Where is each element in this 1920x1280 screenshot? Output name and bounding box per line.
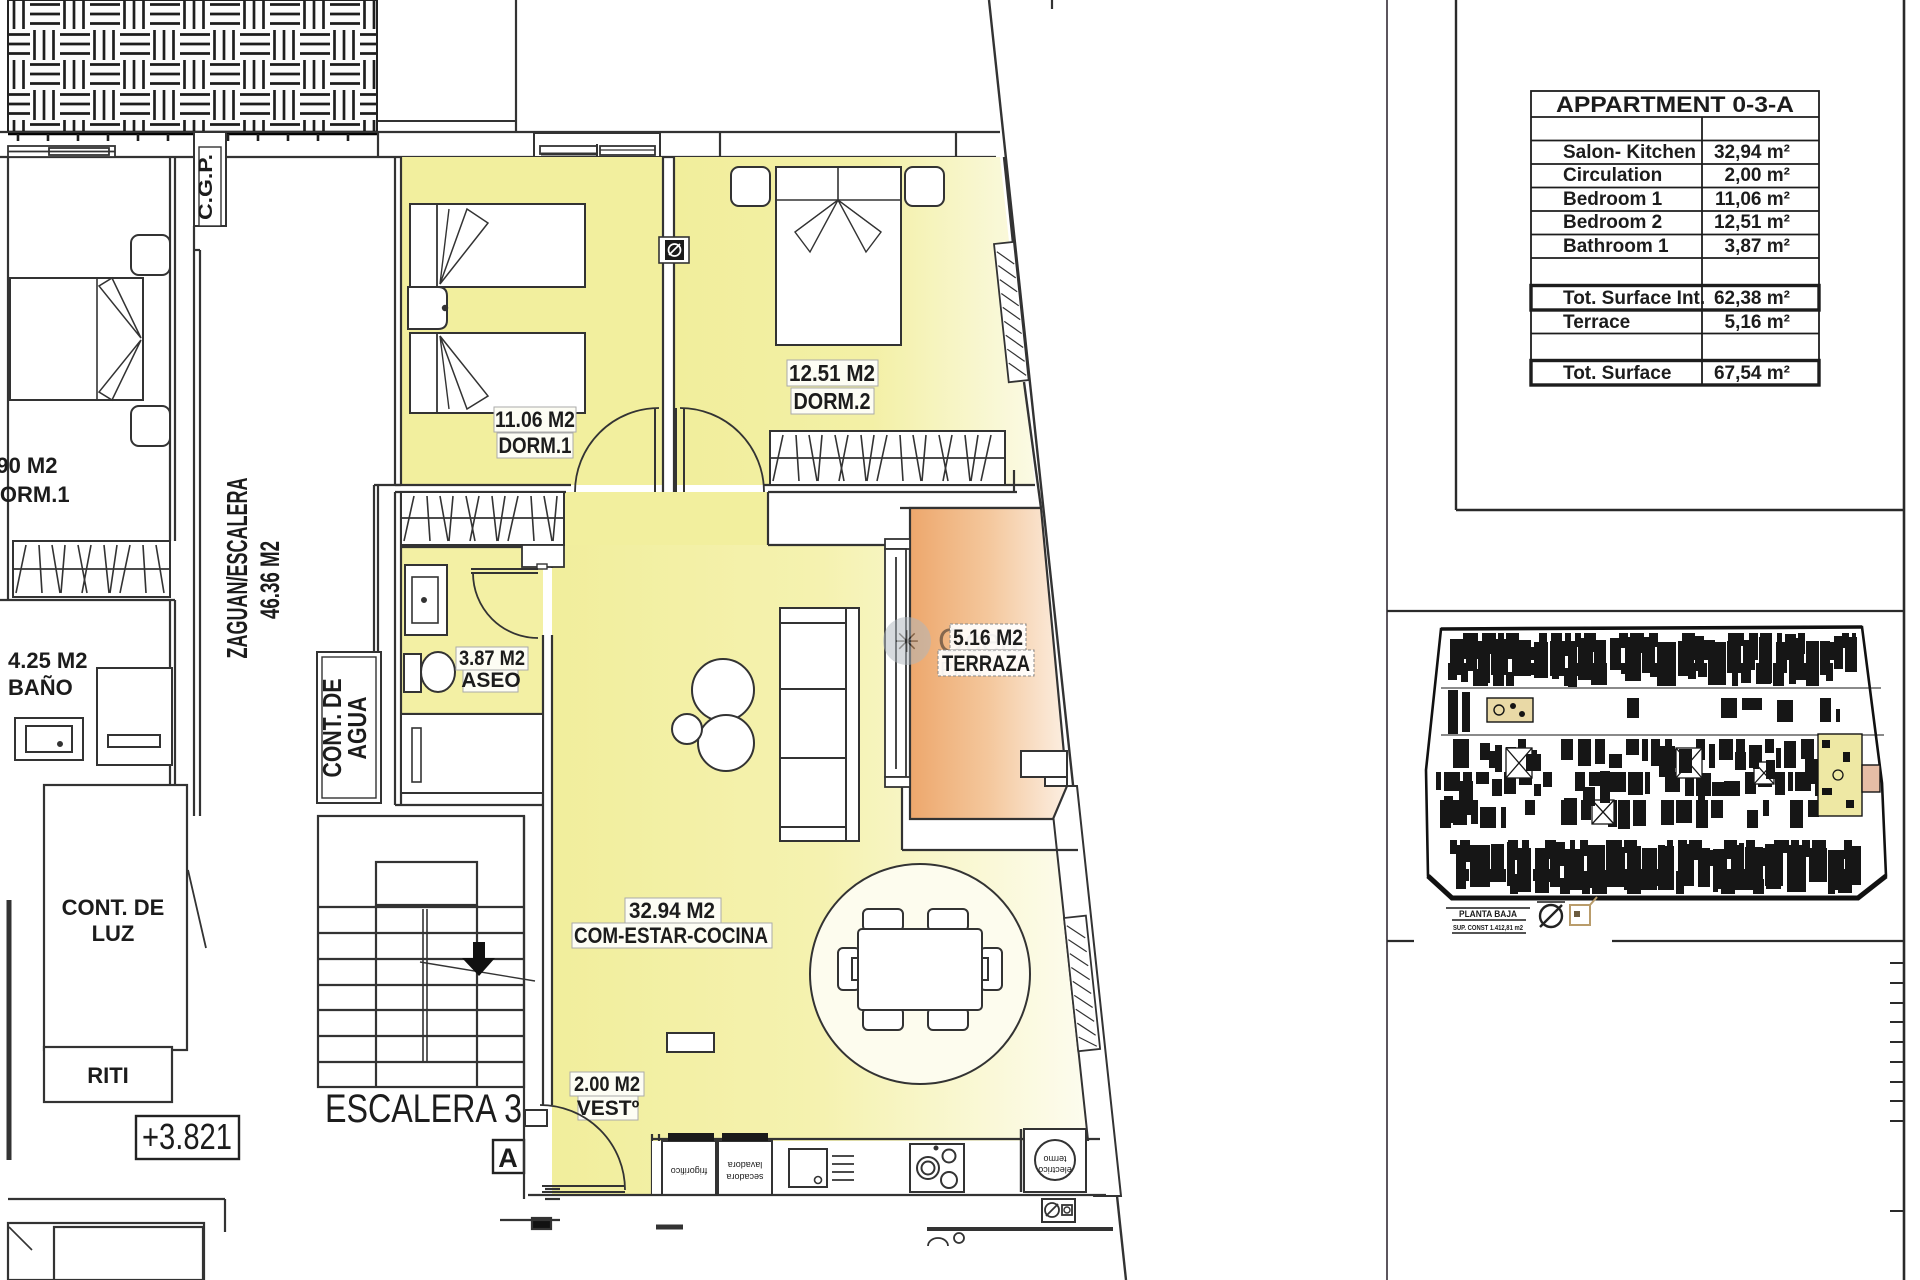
svg-text:A: A: [498, 1143, 518, 1173]
svg-text:CONT. DE: CONT. DE: [62, 895, 165, 920]
svg-text:67,54 m²: 67,54 m²: [1714, 363, 1790, 384]
svg-text:termo: termo: [1043, 1154, 1066, 1164]
svg-text:frigorifico: frigorifico: [671, 1166, 708, 1176]
svg-text:PLANTA BAJA: PLANTA BAJA: [1459, 909, 1517, 919]
svg-text:11,06 m²: 11,06 m²: [1715, 189, 1790, 210]
svg-text:DORM.2: DORM.2: [794, 388, 871, 414]
svg-text:Salon- Kitchen: Salon- Kitchen: [1563, 142, 1696, 163]
svg-text:3,87 m²: 3,87 m²: [1725, 236, 1790, 257]
svg-text:AGUA: AGUA: [342, 696, 372, 759]
svg-text:2,00 m²: 2,00 m²: [1725, 165, 1790, 186]
svg-text:46.36 M2: 46.36 M2: [255, 541, 285, 619]
svg-text:3.87 M2: 3.87 M2: [459, 647, 525, 670]
svg-text:LUZ: LUZ: [92, 921, 135, 946]
svg-text:BAÑO: BAÑO: [8, 675, 73, 700]
svg-text:VESTº: VESTº: [577, 1097, 640, 1120]
svg-text:electrico: electrico: [1038, 1165, 1072, 1175]
svg-text:✳: ✳: [894, 626, 919, 659]
svg-text:Terrace: Terrace: [1563, 312, 1630, 333]
svg-text:Tot. Surface Int.: Tot. Surface Int.: [1563, 288, 1705, 309]
svg-text:DORM.1: DORM.1: [0, 482, 70, 507]
svg-text:4.90 M2: 4.90 M2: [0, 453, 58, 478]
svg-text:COM-ESTAR-COCINA: COM-ESTAR-COCINA: [574, 923, 768, 948]
svg-text:secadora: secadora: [726, 1172, 763, 1182]
svg-text:5.16 M2: 5.16 M2: [953, 625, 1023, 650]
svg-text:32.94 M2: 32.94 M2: [629, 898, 715, 923]
svg-text:4.25 M2: 4.25 M2: [8, 648, 88, 673]
svg-text:62,38 m²: 62,38 m²: [1714, 288, 1790, 309]
svg-text:ZAGUAN/ESCALERA: ZAGUAN/ESCALERA: [222, 477, 254, 658]
svg-text:+3.821: +3.821: [142, 1116, 232, 1157]
svg-text:TERRAZA: TERRAZA: [942, 651, 1030, 676]
svg-text:12,51 m²: 12,51 m²: [1714, 212, 1790, 233]
svg-text:Bedroom 2: Bedroom 2: [1563, 212, 1662, 233]
svg-text:Bathroom 1: Bathroom 1: [1563, 236, 1669, 257]
svg-text:APPARTMENT 0-3-A: APPARTMENT 0-3-A: [1556, 92, 1794, 117]
svg-text:lavadora: lavadora: [728, 1160, 763, 1170]
svg-text:5,16 m²: 5,16 m²: [1725, 312, 1790, 333]
svg-text:2.00 M2: 2.00 M2: [574, 1073, 640, 1096]
svg-text:Tot. Surface: Tot. Surface: [1563, 363, 1671, 384]
svg-text:32,94 m²: 32,94 m²: [1714, 142, 1790, 163]
svg-text:DORM.1: DORM.1: [499, 433, 572, 458]
svg-text:C.G.P.: C.G.P.: [196, 154, 217, 220]
svg-text:ESCALERA 3: ESCALERA 3: [325, 1087, 522, 1131]
svg-text:12.51 M2: 12.51 M2: [789, 360, 875, 386]
svg-text:11.06 M2: 11.06 M2: [495, 407, 575, 432]
svg-text:ASEO: ASEO: [461, 669, 521, 692]
svg-text:Circulation: Circulation: [1563, 165, 1662, 186]
svg-text:RITI: RITI: [87, 1063, 129, 1088]
svg-text:Bedroom 1: Bedroom 1: [1563, 189, 1663, 210]
svg-text:SUP. CONST 1.412,81 m2: SUP. CONST 1.412,81 m2: [1453, 923, 1523, 932]
